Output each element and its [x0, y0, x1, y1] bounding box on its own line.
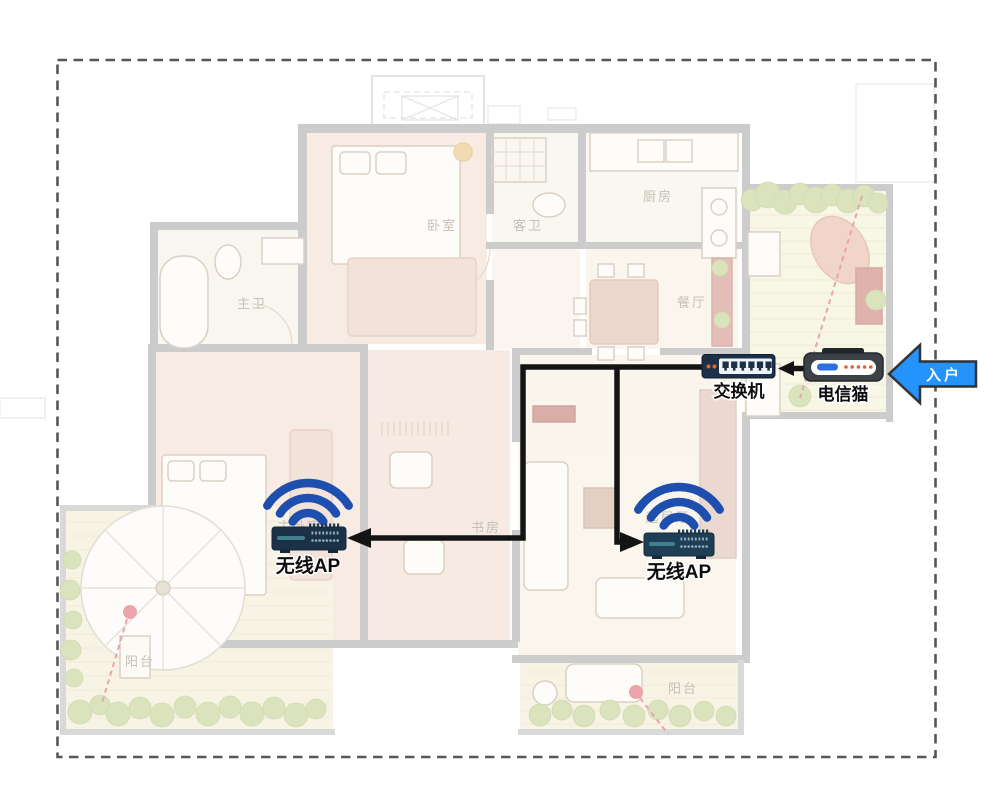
modem-display — [817, 364, 838, 371]
room-label-master-bath: 主卫 — [237, 296, 267, 311]
switch-led — [713, 365, 717, 369]
room-label-guest-bath: 客卫 — [513, 218, 543, 233]
room-label-balcony-bottom: 阳台 — [668, 681, 698, 696]
room-label-study: 书房 — [471, 520, 501, 535]
floorplan: 主卫 客卫 厨房 餐厅 卧室 主卧室 书房 起居厅 阳台 阳台 — [0, 76, 934, 735]
red-dot-bottom-balcony — [629, 685, 643, 699]
home-network-diagram-page: 主卫 客卫 厨房 餐厅 卧室 主卧室 书房 起居厅 阳台 阳台 — [0, 0, 1000, 793]
switch-led — [707, 365, 711, 369]
entry-arrow: 入户 — [889, 345, 976, 403]
diagram-canvas: 主卫 客卫 厨房 餐厅 卧室 主卧室 书房 起居厅 阳台 阳台 — [0, 0, 1000, 793]
wireless-ap-left-device — [272, 524, 346, 554]
ap-right-label: 无线AP — [647, 560, 712, 583]
room-label-balcony-left: 阳台 — [125, 654, 155, 669]
modem-label: 电信猫 — [818, 384, 869, 404]
red-dot-left-balcony — [123, 605, 137, 619]
room-label-kitchen: 厨房 — [643, 189, 673, 204]
ap-left-label: 无线AP — [276, 554, 341, 577]
room-label-dining: 餐厅 — [677, 295, 707, 310]
wireless-ap-right-device — [644, 530, 714, 560]
entry-arrow-label: 入户 — [926, 366, 962, 384]
switch-label: 交换机 — [714, 381, 765, 401]
room-label-bedroom: 卧室 — [427, 218, 457, 233]
switch-device — [702, 355, 775, 379]
modem-device — [804, 348, 883, 381]
